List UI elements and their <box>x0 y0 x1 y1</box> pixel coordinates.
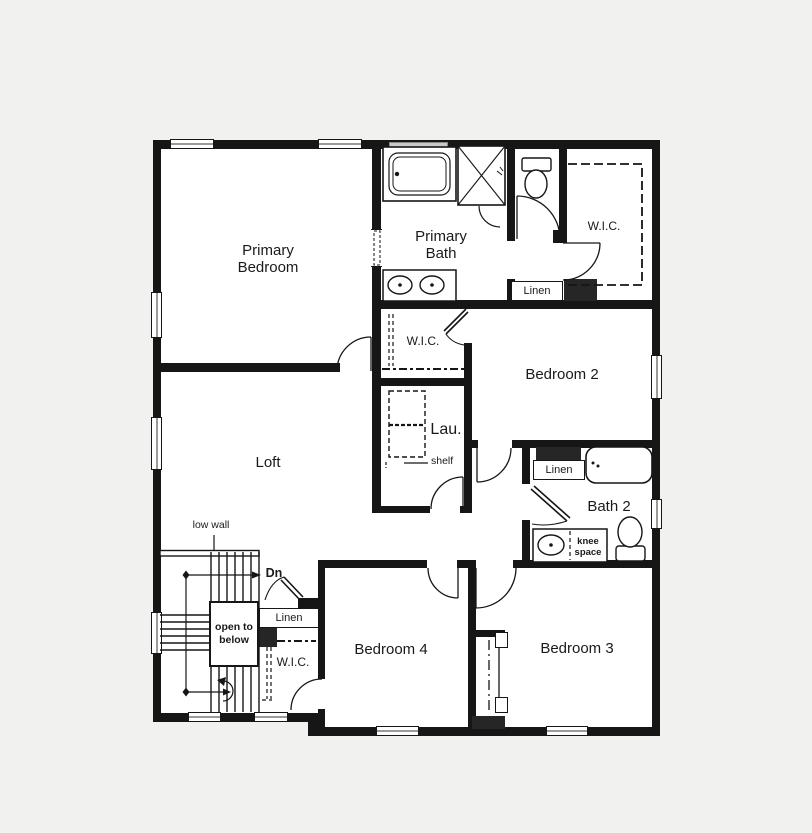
bath2-toilet-icon <box>616 517 645 561</box>
bedroom4-wic-door <box>291 679 322 710</box>
bedroom2-door <box>477 448 511 482</box>
shower-icon <box>458 146 505 227</box>
bath2-linen-box: Linen <box>533 460 585 480</box>
primary-vanity-icon <box>383 270 456 301</box>
low-wall-rail <box>160 551 259 557</box>
bath2-linen-label: Linen <box>546 464 573 476</box>
toilet-room-door <box>517 196 560 239</box>
hall-linen-box: Linen <box>259 608 319 628</box>
bedroom2-wic-label: W.I.C. <box>395 335 451 348</box>
hall-linen-label: Linen <box>276 612 303 624</box>
low-wall-label: low wall <box>178 520 244 532</box>
upper-linen-box: Linen <box>511 281 563 301</box>
bath2-door <box>531 486 570 525</box>
plan-linework <box>0 0 812 833</box>
upper-linen-label: Linen <box>524 285 551 297</box>
primary-wic-label: W.I.C. <box>574 220 634 233</box>
primary-bedroom-label: Primary Bedroom <box>213 243 323 277</box>
primary-toilet-icon <box>522 158 551 198</box>
bedroom4-label: Bedroom 4 <box>331 642 451 659</box>
loft-label: Loft <box>238 455 298 472</box>
bedroom4-wic-dashes <box>262 641 316 700</box>
path-diamond-top <box>183 571 190 580</box>
laundry-shelf-label: shelf <box>431 456 471 468</box>
open-to-below-label: open to below <box>211 621 257 647</box>
primary-tub-icon <box>383 147 456 201</box>
primary-bedroom-door <box>337 337 371 371</box>
hall-linen-door <box>265 577 303 600</box>
bedroom2-label: Bedroom 2 <box>502 367 622 384</box>
bedroom4-door <box>428 568 458 598</box>
bedroom4-wic-label: W.I.C. <box>270 656 316 669</box>
floor-plan: Linen Linen Linen open to below Primary … <box>0 0 812 833</box>
bedroom3-closet-dashes <box>489 640 499 712</box>
laundry-appliances <box>386 391 428 468</box>
bedroom3-door <box>476 568 516 608</box>
open-to-below-box: open to below <box>209 601 259 667</box>
path-diamond-bottom <box>183 688 190 697</box>
bedroom3-label: Bedroom 3 <box>517 641 637 658</box>
bath2-tub-icon <box>586 447 652 483</box>
bath2-label: Bath 2 <box>578 499 640 516</box>
pocket-door-panel <box>374 231 380 265</box>
primary-bath-label: Primary Bath <box>407 229 475 263</box>
laundry-door <box>431 477 463 509</box>
primary-wic-door <box>563 243 600 280</box>
dn-label: Dn <box>261 566 287 580</box>
laundry-label: Lau. <box>424 421 468 439</box>
bath2-knee-space-label: knee space <box>569 536 607 559</box>
